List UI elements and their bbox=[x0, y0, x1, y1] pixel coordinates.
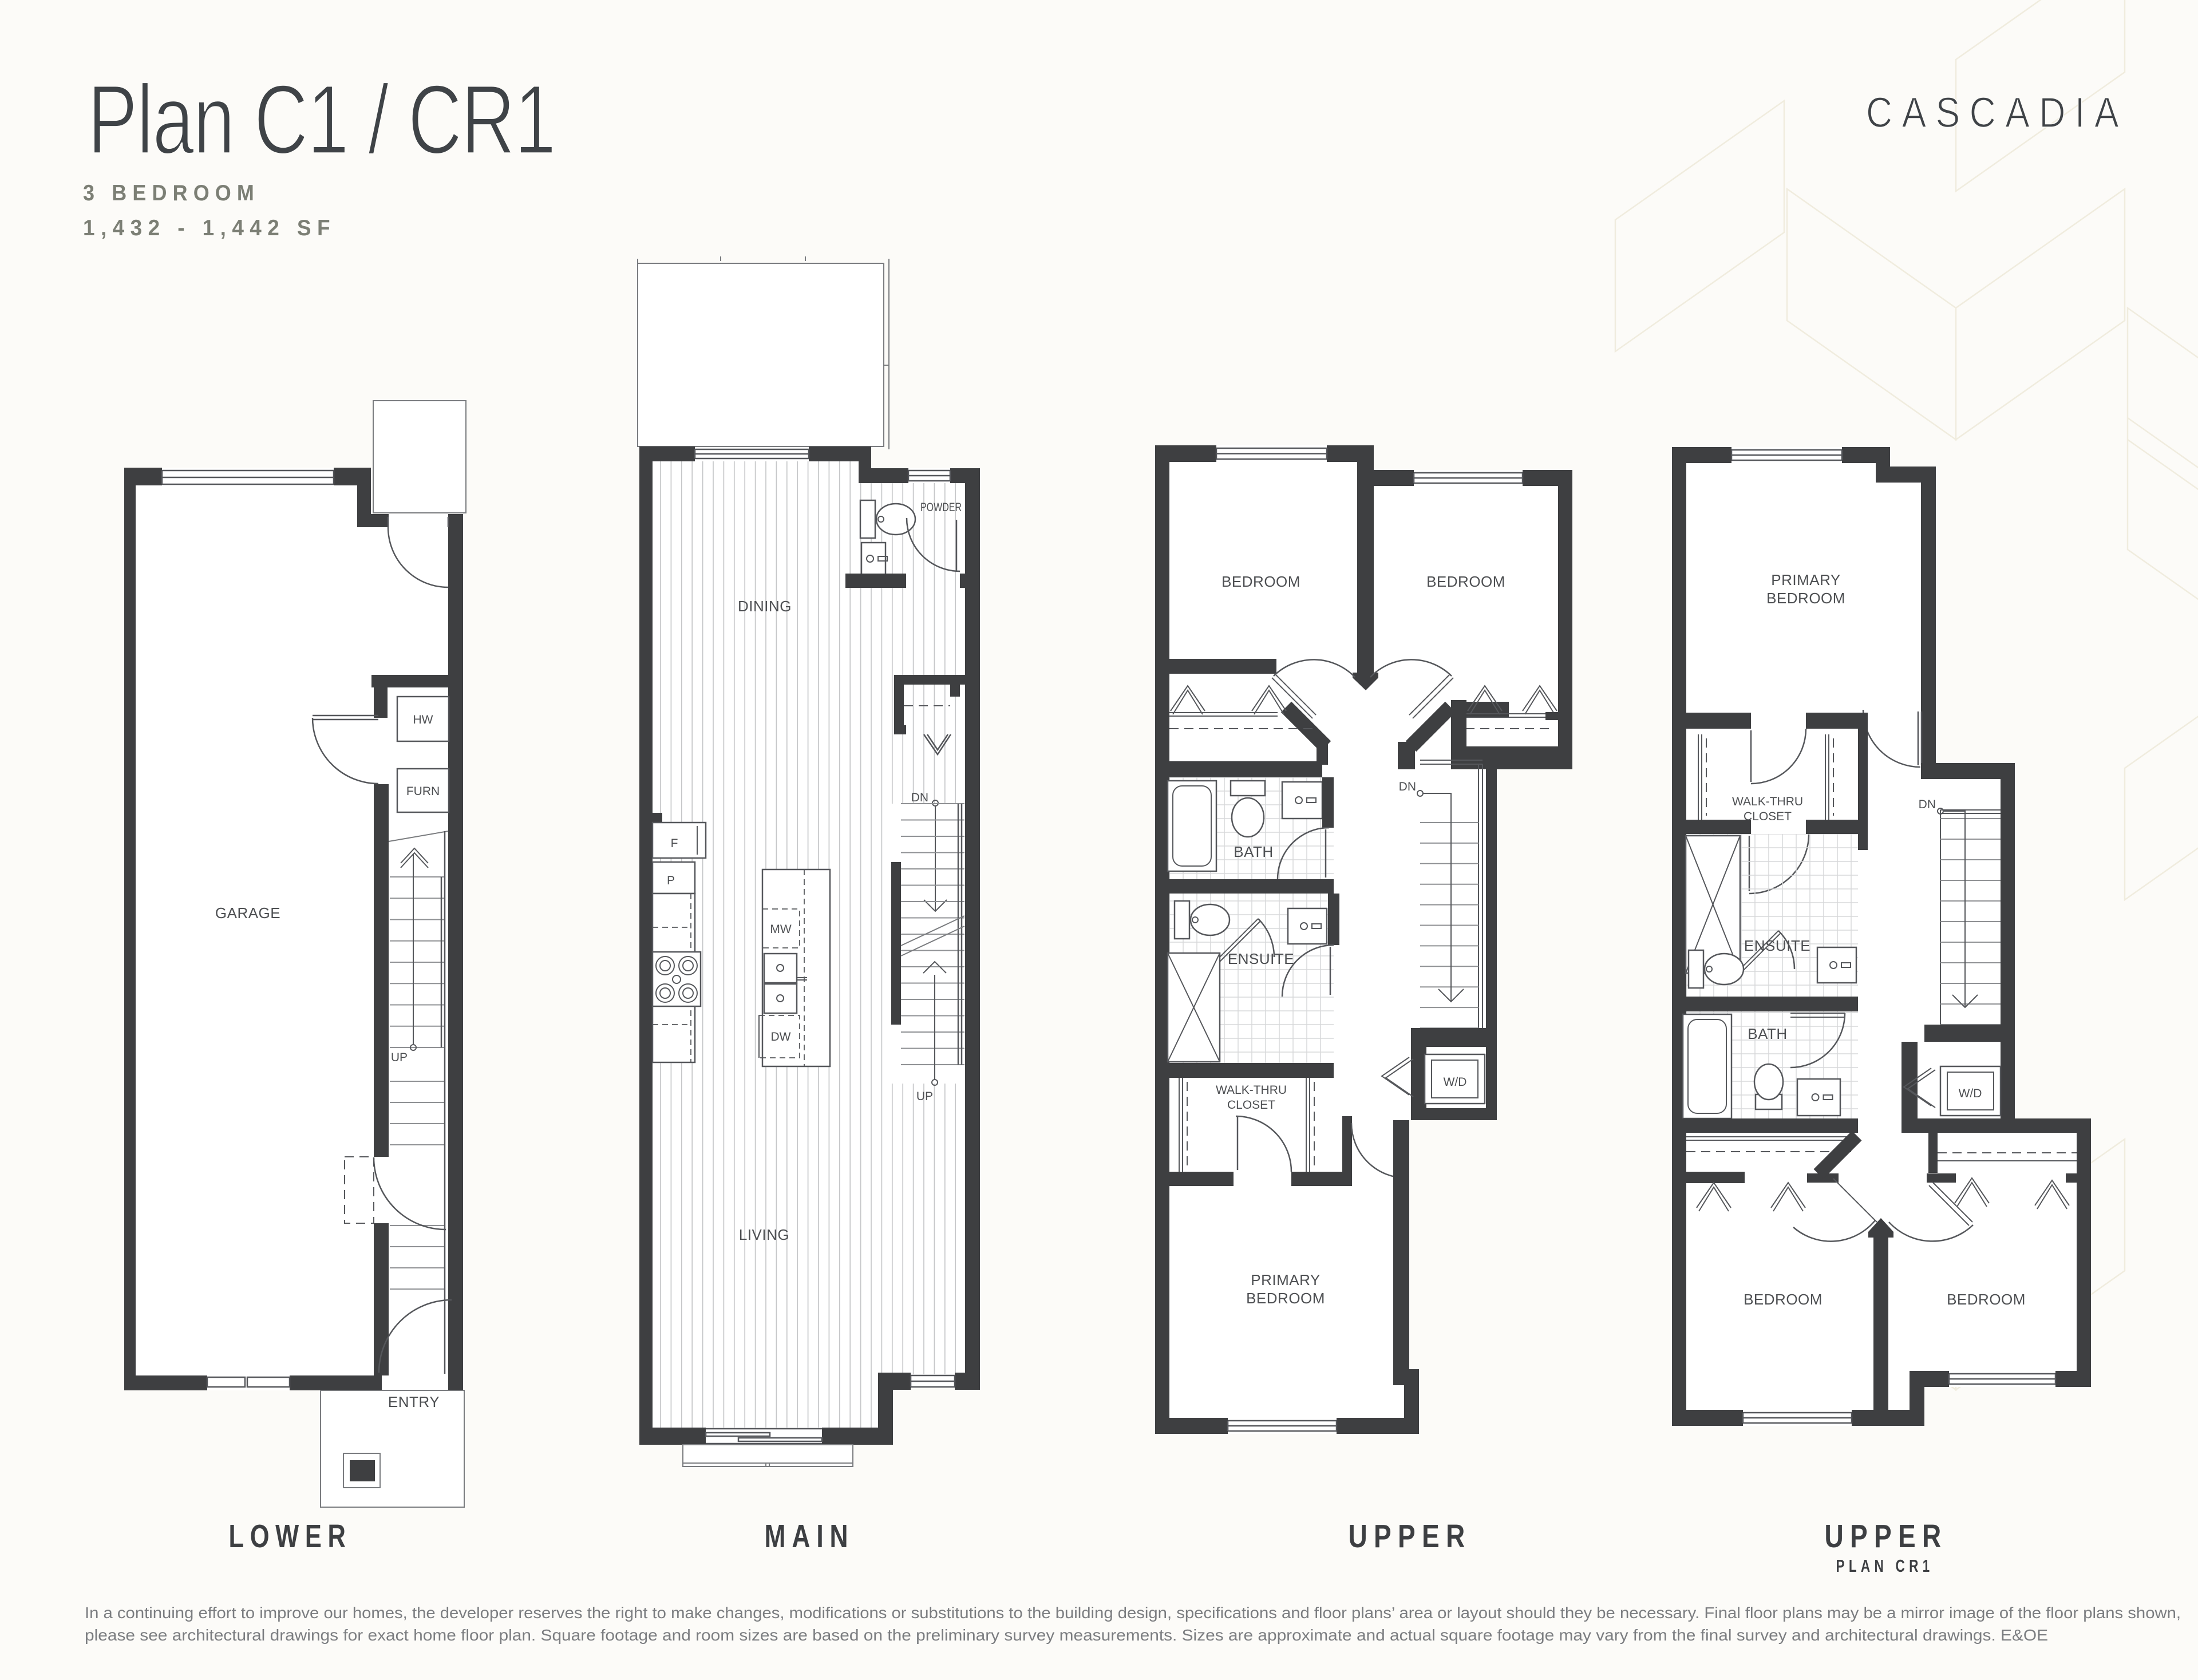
svg-text:P: P bbox=[667, 874, 675, 887]
svg-text:Plan C1 / CR1: Plan C1 / CR1 bbox=[88, 65, 555, 175]
svg-text:3 BEDROOM: 3 BEDROOM bbox=[83, 181, 260, 205]
svg-text:HW: HW bbox=[413, 713, 433, 726]
svg-text:GARAGE: GARAGE bbox=[215, 904, 280, 922]
svg-text:CLOSET: CLOSET bbox=[1227, 1098, 1275, 1112]
svg-text:ENSUITE: ENSUITE bbox=[1228, 950, 1294, 967]
svg-text:BEDROOM: BEDROOM bbox=[1947, 1291, 2026, 1308]
svg-text:please see architectural drawi: please see architectural drawings for ex… bbox=[85, 1626, 2048, 1644]
svg-text:DINING: DINING bbox=[738, 598, 792, 615]
svg-text:CASCADIA: CASCADIA bbox=[1866, 89, 2128, 136]
svg-text:In a continuing effort to impr: In a continuing effort to improve our ho… bbox=[85, 1604, 2181, 1622]
svg-text:BEDROOM: BEDROOM bbox=[1221, 573, 1300, 590]
svg-text:DN: DN bbox=[1399, 780, 1416, 793]
svg-text:LIVING: LIVING bbox=[739, 1226, 789, 1243]
svg-text:BATH: BATH bbox=[1234, 843, 1273, 860]
svg-text:BEDROOM: BEDROOM bbox=[1426, 573, 1505, 590]
svg-text:F: F bbox=[671, 837, 678, 850]
svg-text:ENSUITE: ENSUITE bbox=[1744, 937, 1810, 954]
svg-text:DN: DN bbox=[911, 791, 928, 804]
svg-text:PRIMARY: PRIMARY bbox=[1771, 571, 1841, 588]
svg-text:UPPER: UPPER bbox=[1349, 1518, 1472, 1555]
svg-text:MW: MW bbox=[770, 923, 791, 936]
svg-text:POWDER: POWDER bbox=[920, 501, 962, 514]
svg-text:WALK-THRU: WALK-THRU bbox=[1732, 795, 1803, 808]
svg-text:BEDROOM: BEDROOM bbox=[1744, 1291, 1823, 1308]
svg-text:1,432 - 1,442 SF: 1,432 - 1,442 SF bbox=[83, 216, 336, 240]
svg-text:LOWER: LOWER bbox=[229, 1518, 352, 1555]
svg-text:BEDROOM: BEDROOM bbox=[1246, 1290, 1325, 1307]
svg-text:W/D: W/D bbox=[1444, 1076, 1467, 1089]
svg-text:PLAN CR1: PLAN CR1 bbox=[1836, 1556, 1934, 1576]
svg-text:BEDROOM: BEDROOM bbox=[1766, 590, 1845, 607]
svg-text:FURN: FURN bbox=[406, 785, 440, 798]
svg-text:W/D: W/D bbox=[1959, 1087, 1982, 1100]
svg-text:UPPER: UPPER bbox=[1825, 1518, 1948, 1555]
svg-text:ENTRY: ENTRY bbox=[388, 1393, 440, 1410]
svg-text:PRIMARY: PRIMARY bbox=[1251, 1271, 1321, 1288]
svg-text:MAIN: MAIN bbox=[765, 1518, 855, 1555]
svg-text:UP: UP bbox=[391, 1051, 408, 1064]
svg-text:BATH: BATH bbox=[1748, 1025, 1787, 1042]
svg-text:DN: DN bbox=[1919, 798, 1936, 811]
svg-text:WALK-THRU: WALK-THRU bbox=[1216, 1084, 1287, 1097]
svg-text:UP: UP bbox=[916, 1090, 933, 1103]
svg-text:DW: DW bbox=[771, 1030, 791, 1043]
